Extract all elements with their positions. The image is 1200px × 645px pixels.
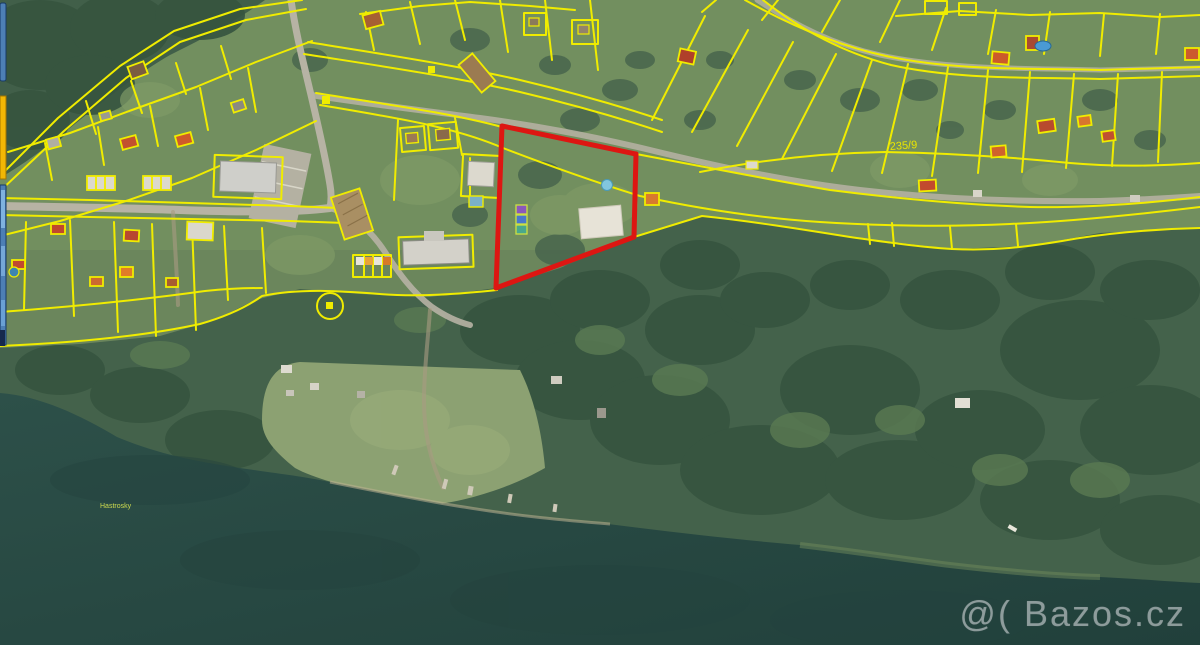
playground-equipment (516, 205, 527, 234)
pool (602, 180, 613, 191)
panel-notch (1, 246, 5, 276)
map-canvas: 235/9 Hastrosky (0, 0, 1200, 645)
parcel-number-label: 235/9 (889, 139, 917, 153)
panel-notch (1, 190, 5, 228)
place-name-label: Hastrosky (100, 503, 132, 510)
sand-court (579, 205, 623, 239)
aerial-map-image[interactable]: 235/9 Hastrosky @( Bazos.cz (0, 0, 1200, 645)
left-edge-panels (0, 3, 6, 346)
panel-yellow[interactable] (0, 96, 6, 179)
panel-notch (1, 300, 5, 326)
panel-notch-dark (0, 330, 5, 346)
panel-blue-top[interactable] (0, 3, 6, 81)
